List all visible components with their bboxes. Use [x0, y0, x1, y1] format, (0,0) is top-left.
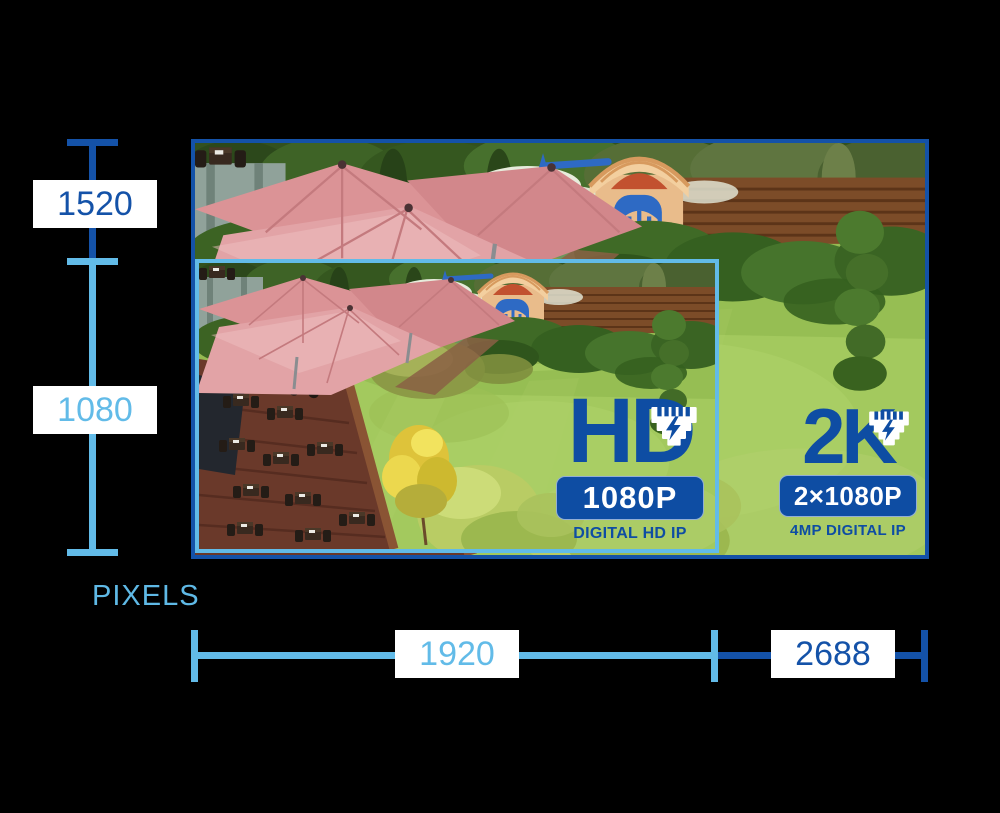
logo-hd-title-row: HD	[568, 390, 693, 473]
dimension-label-2k-width: 2688	[771, 630, 895, 678]
logo-hd: HD 1080P DIGITAL HD IP	[553, 390, 707, 543]
logo-hd-badge: 1080P	[556, 476, 704, 520]
tick-shared-height-mid	[67, 258, 118, 265]
tick-hd-height-bottom	[67, 549, 118, 556]
dimension-label-hd-width: 1920	[395, 630, 519, 678]
logo-2k-caption: 4MP DIGITAL IP	[790, 522, 906, 539]
dimension-label-hd-height: 1080	[33, 386, 157, 434]
logo-2k: 2K 2×1080P 4MP DIGITAL IP	[777, 401, 919, 539]
tick-hd-width-left	[191, 630, 198, 682]
dimension-label-2k-height: 1520	[33, 180, 157, 228]
frame-hd-resolution: HD 1080P DIGITAL HD IP	[195, 259, 719, 553]
ethernet-connector-icon	[868, 410, 910, 448]
resolution-comparison-infographic: 1520 1080 PIXELS 1920 2688 2K 2×1080P 4M…	[0, 0, 1000, 813]
logo-2k-badge: 2×1080P	[779, 475, 917, 517]
pixels-caption: PIXELS	[92, 580, 200, 613]
tick-2k-height-top	[67, 139, 118, 146]
ethernet-connector-icon	[650, 405, 698, 449]
logo-2k-title-row: 2K	[802, 401, 894, 471]
tick-shared-width-mid	[711, 630, 718, 682]
tick-2k-width-right	[921, 630, 928, 682]
logo-hd-caption: DIGITAL HD IP	[573, 525, 687, 543]
